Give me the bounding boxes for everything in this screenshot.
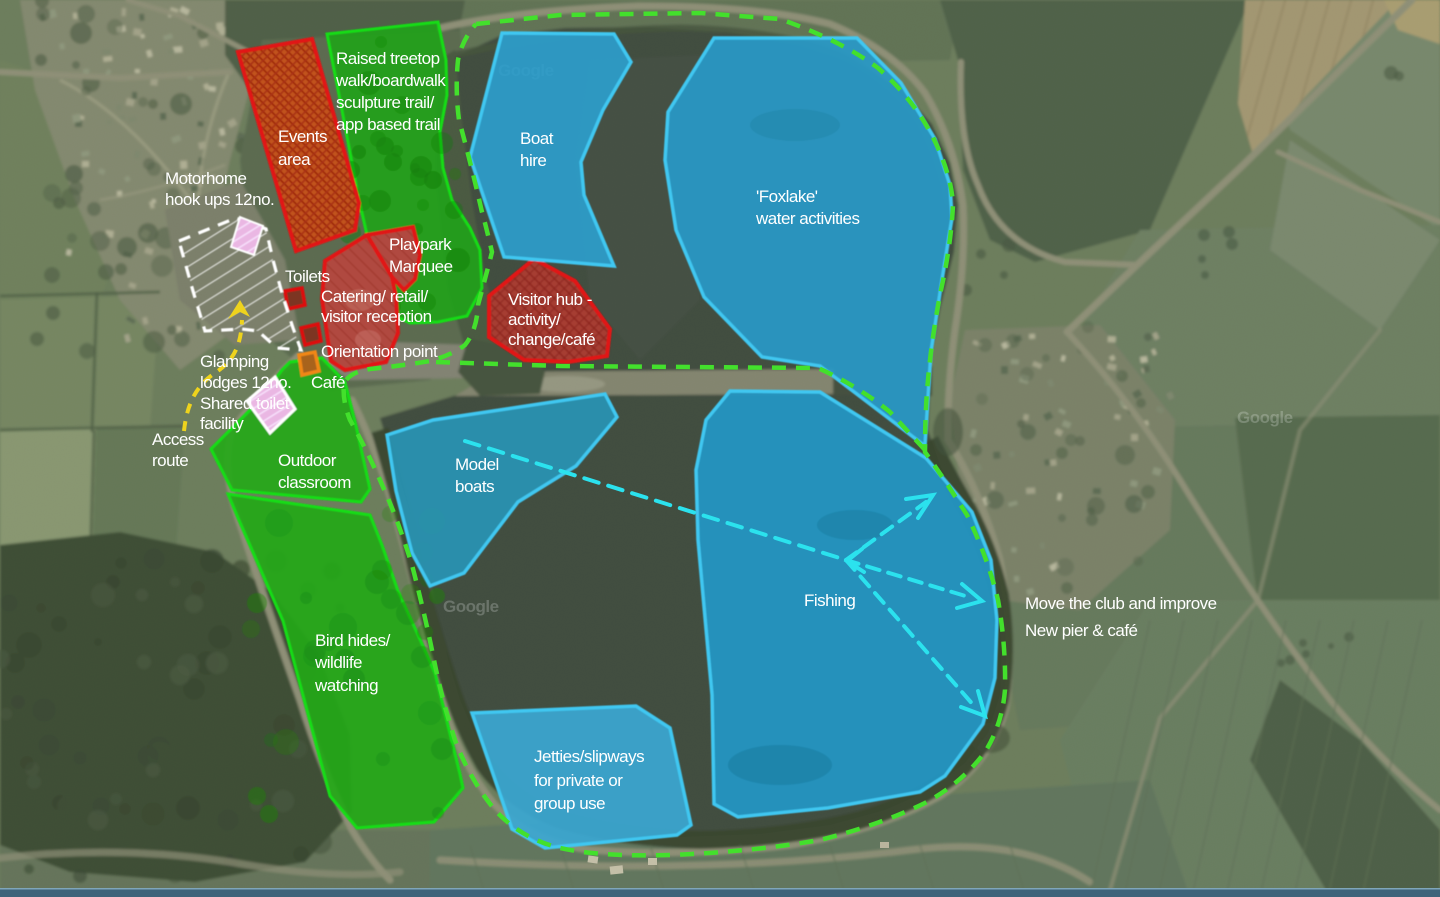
svg-text:visitor reception: visitor reception bbox=[321, 307, 432, 326]
svg-text:hook ups 12no.: hook ups 12no. bbox=[165, 190, 274, 209]
svg-text:Café: Café bbox=[311, 373, 345, 392]
svg-text:Motorhome: Motorhome bbox=[165, 169, 247, 188]
svg-text:Google: Google bbox=[443, 597, 499, 616]
svg-text:Boat: Boat bbox=[520, 129, 554, 148]
svg-text:Fishing: Fishing bbox=[804, 591, 855, 610]
svg-text:watching: watching bbox=[314, 676, 378, 695]
svg-text:sculpture trail/: sculpture trail/ bbox=[336, 93, 435, 112]
svg-text:wildlife: wildlife bbox=[314, 653, 362, 672]
svg-text:app based trail: app based trail bbox=[336, 115, 440, 134]
svg-text:hire: hire bbox=[520, 151, 546, 170]
svg-text:area: area bbox=[278, 150, 311, 169]
svg-text:Glamping: Glamping bbox=[200, 352, 269, 371]
svg-text:Raised treetop: Raised treetop bbox=[336, 49, 440, 68]
svg-text:lodges 12no.: lodges 12no. bbox=[200, 373, 291, 392]
svg-text:Catering/ retail/: Catering/ retail/ bbox=[321, 287, 429, 306]
svg-text:Google: Google bbox=[1237, 408, 1293, 427]
svg-text:New pier & café: New pier & café bbox=[1025, 621, 1138, 640]
svg-text:Shared toilet: Shared toilet bbox=[200, 394, 290, 413]
svg-text:water activities: water activities bbox=[755, 209, 859, 228]
svg-text:Move the club and improve: Move the club and improve bbox=[1025, 594, 1217, 613]
svg-text:Model: Model bbox=[455, 455, 499, 474]
svg-text:boats: boats bbox=[455, 477, 494, 496]
svg-text:Orientation point: Orientation point bbox=[321, 342, 438, 361]
svg-text:change/café: change/café bbox=[508, 330, 595, 349]
svg-text:facility: facility bbox=[200, 414, 244, 433]
svg-text:activity/: activity/ bbox=[508, 310, 561, 329]
svg-text:Visitor hub -: Visitor hub - bbox=[508, 290, 592, 309]
svg-text:for private or: for private or bbox=[534, 771, 623, 790]
svg-text:Toilets: Toilets bbox=[285, 267, 330, 286]
svg-text:group use: group use bbox=[534, 794, 605, 813]
svg-text:walk/boardwalk: walk/boardwalk bbox=[335, 71, 446, 90]
svg-text:Events: Events bbox=[278, 127, 327, 146]
svg-text:Bird hides/: Bird hides/ bbox=[315, 631, 391, 650]
svg-text:Playpark: Playpark bbox=[389, 235, 452, 254]
svg-text:Marquee: Marquee bbox=[389, 257, 453, 276]
svg-text:Outdoor: Outdoor bbox=[278, 451, 337, 470]
svg-text:Access: Access bbox=[152, 430, 204, 449]
svg-text:'Foxlake': 'Foxlake' bbox=[756, 187, 818, 206]
svg-text:classroom: classroom bbox=[278, 473, 351, 492]
svg-text:Jetties/slipways: Jetties/slipways bbox=[534, 747, 644, 766]
svg-text:route: route bbox=[152, 451, 188, 470]
